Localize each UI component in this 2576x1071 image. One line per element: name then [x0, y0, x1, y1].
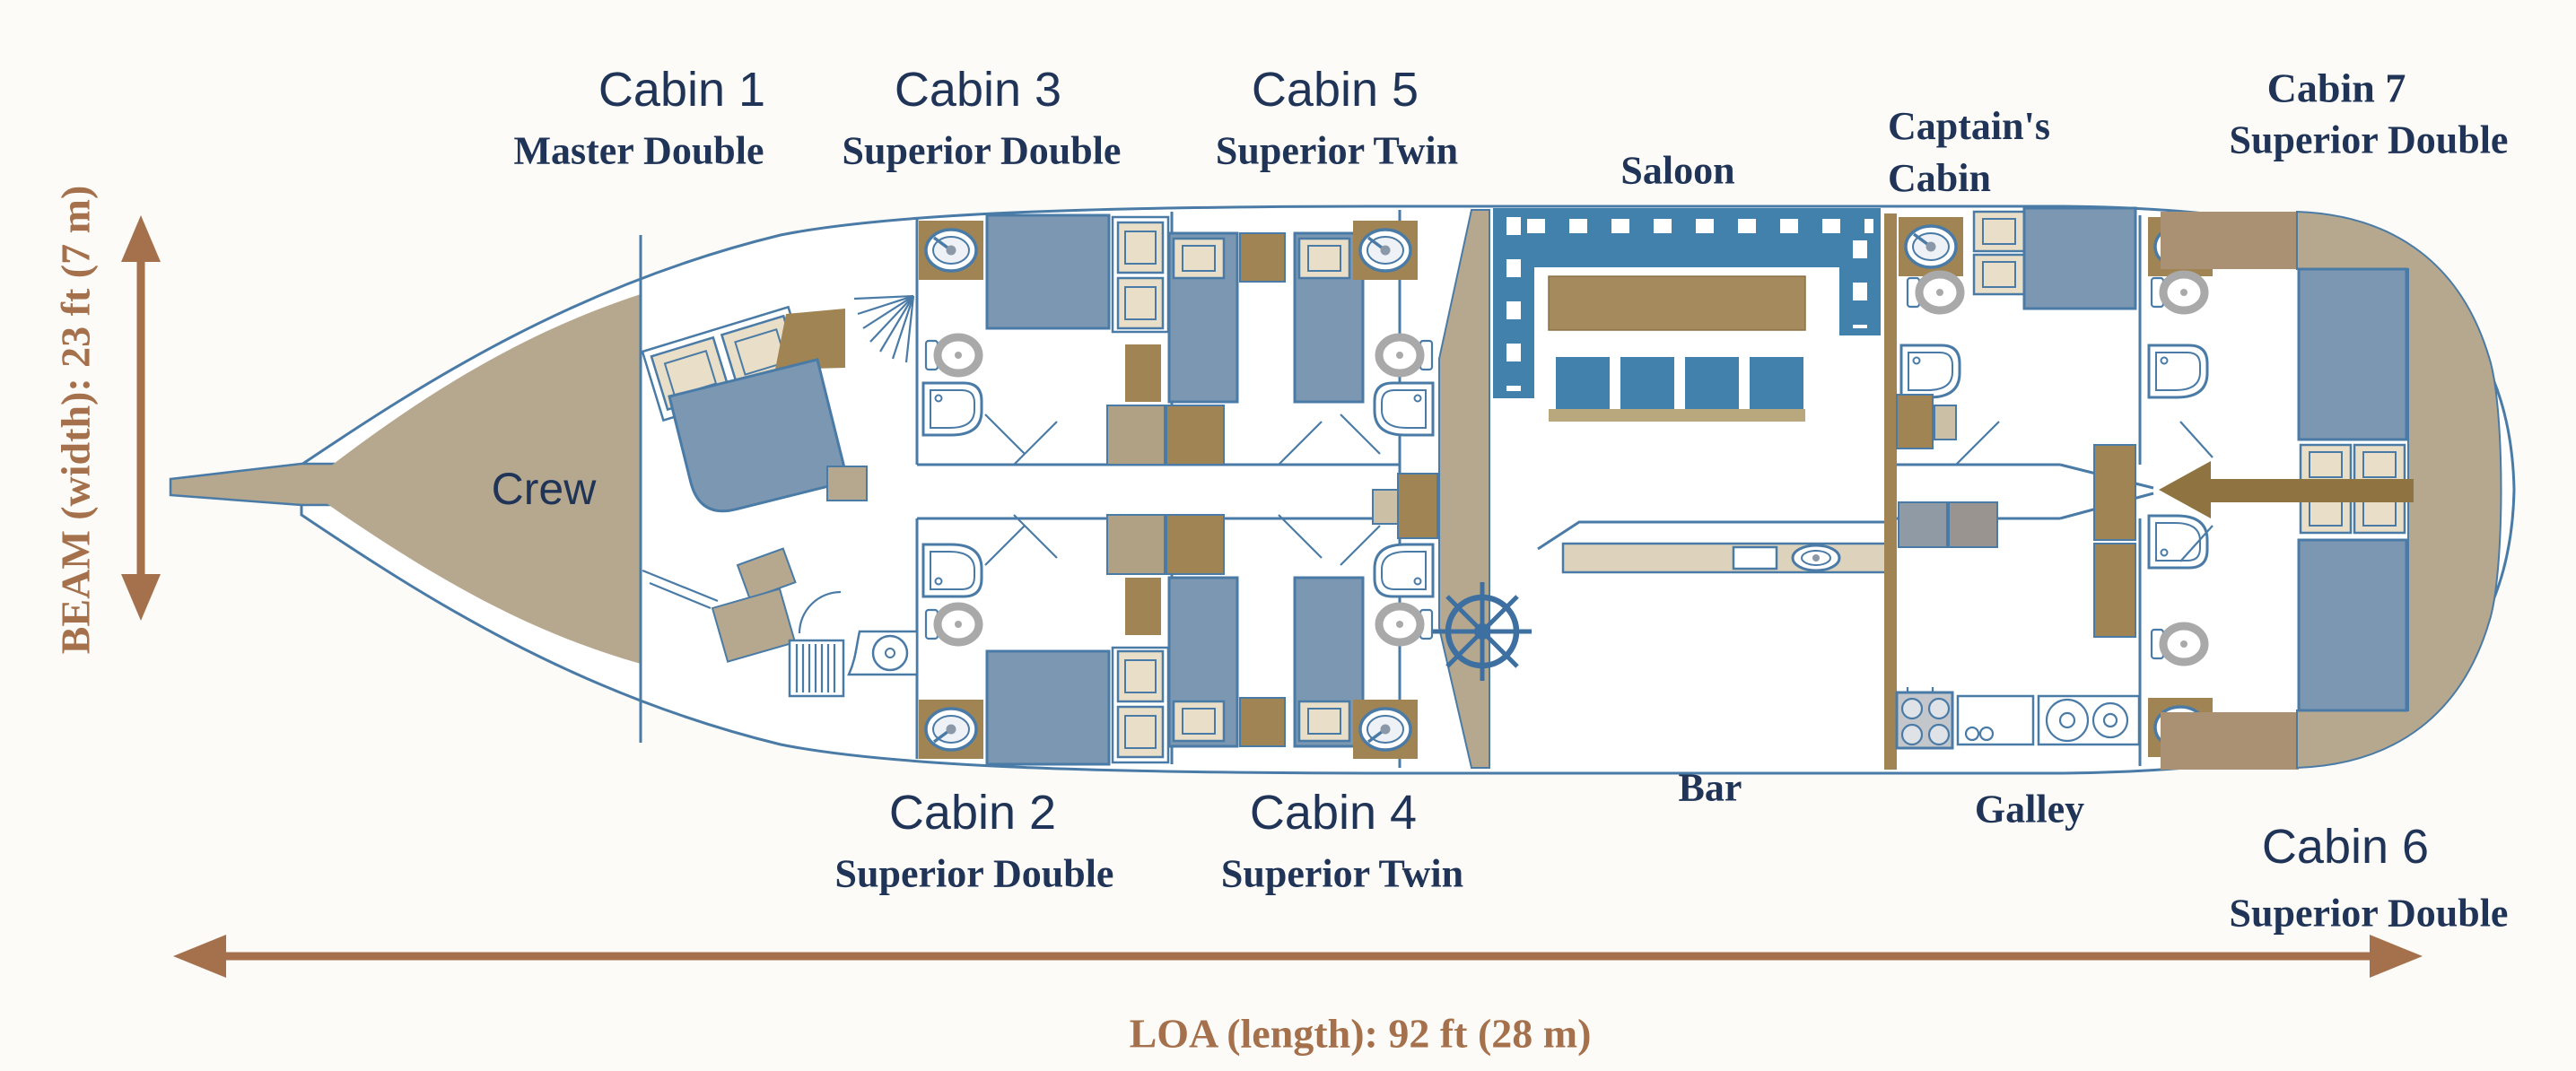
cabin-5-subtitle: Superior Twin [1216, 128, 1458, 174]
toilet-icon [2152, 626, 2205, 662]
wardrobe [2094, 445, 2135, 540]
mast-step [1398, 474, 1437, 538]
saloon-table [1549, 276, 1805, 330]
cabin-4-title: Cabin 4 [1250, 785, 1417, 840]
toilet-icon [1379, 337, 1432, 373]
sink-dial-icon [1899, 217, 1963, 276]
cabin-1-title: Cabin 1 [598, 62, 765, 118]
sink-dial-icon [1353, 221, 1418, 280]
galley-label: Galley [1975, 787, 2084, 832]
captains-bed [2024, 208, 2135, 309]
galley-counter [1958, 696, 2033, 744]
captains-cabin-line2: Cabin [1888, 152, 2050, 205]
main-bulkhead [1884, 213, 1897, 770]
cabin-6-subtitle: Superior Double [2230, 891, 2509, 936]
locker [1949, 502, 1997, 547]
bar-label: Bar [1679, 765, 1742, 811]
captains-cabin-label: Captain's Cabin [1888, 100, 2050, 205]
cabin-7-subtitle: Superior Double [2230, 118, 2509, 163]
shower-icon [1375, 383, 1433, 435]
nightstand [827, 466, 867, 501]
cabin-3-title: Cabin 3 [895, 62, 1061, 118]
shower-icon [1901, 345, 1960, 397]
crew-label: Crew [492, 463, 597, 515]
cabin-1-subtitle: Master Double [513, 128, 764, 174]
locker [1899, 502, 1947, 547]
cabin-3-bed [987, 215, 1109, 328]
cabin-2-title: Cabin 2 [889, 785, 1056, 840]
captains-cabin-line1: Captain's [1888, 100, 2050, 152]
deck-plan-page: Cabin 1 Master Double Cabin 3 Superior D… [0, 0, 2576, 1071]
loa-dimension-label: LOA (length): 92 ft (28 m) [1130, 1010, 1592, 1058]
cabin-7-title: Cabin 7 [2267, 65, 2406, 112]
cabin-3-subtitle: Superior Double [843, 128, 1122, 174]
nightstand [1240, 233, 1285, 282]
sink-dial-icon [919, 221, 983, 280]
shower-icon [2149, 345, 2207, 397]
cabin-5-title: Cabin 5 [1252, 62, 1419, 118]
loa-arrow-icon [173, 935, 2423, 978]
beam-arrow-icon [121, 215, 161, 621]
toilet-icon [2152, 274, 2205, 310]
cabin-7-bed [2299, 269, 2406, 440]
beam-dimension-label: BEAM (width): 23 ft (7 m) [52, 186, 100, 655]
cabin-2-subtitle: Superior Double [835, 851, 1114, 897]
wardrobe [2094, 544, 2135, 637]
cabin-4-subtitle: Superior Twin [1221, 851, 1463, 897]
ships-wheel-icon [1433, 582, 1532, 681]
sink-bowl [873, 636, 907, 670]
toilet-icon [926, 337, 979, 373]
toilet-icon [1908, 274, 1960, 310]
cabin-6-bed [2299, 540, 2406, 710]
shower-icon [923, 383, 982, 435]
wardrobe [1125, 344, 1161, 402]
saloon-label: Saloon [1620, 148, 1734, 194]
cabin-6-title: Cabin 6 [2262, 819, 2429, 875]
